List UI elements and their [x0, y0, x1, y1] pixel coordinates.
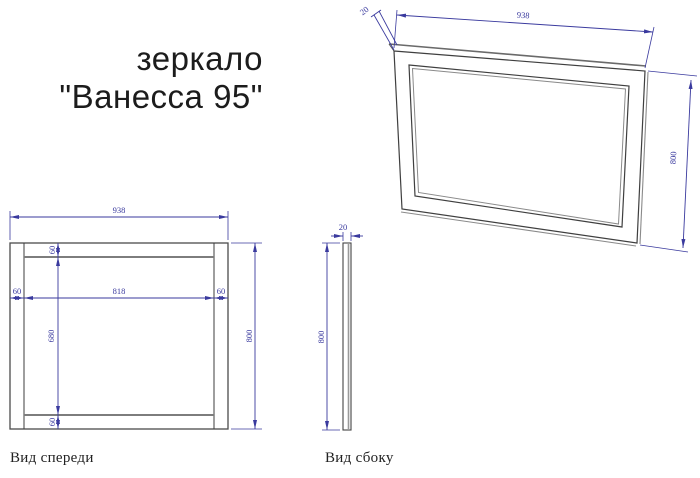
- front-dim-top-margin-value: 60: [47, 246, 57, 255]
- perspective-dim-height: 800: [640, 71, 697, 252]
- side-dim-thickness-value: 20: [339, 222, 348, 232]
- side-dim-height-value: 800: [316, 331, 326, 344]
- perspective-dim-width-value: 938: [517, 10, 530, 21]
- technical-drawing: 938 20 800: [0, 0, 700, 478]
- front-view: 938 60 818 60 60 680 60: [10, 205, 262, 466]
- front-dim-inner-width-value: 818: [113, 286, 126, 296]
- front-dim-horizontal-chain: 60 818 60: [10, 286, 228, 298]
- drawing-sheet: зеркало "Ванесса 95" 938: [0, 0, 700, 478]
- perspective-dim-width: 938: [394, 10, 654, 68]
- front-dim-height: 800: [231, 243, 262, 429]
- extension-line: [645, 27, 654, 68]
- front-dim-vertical-chain: 60 680 60: [46, 243, 58, 429]
- perspective-dim-height-value: 800: [668, 151, 679, 164]
- front-dim-bottom-margin-value: 60: [47, 418, 57, 427]
- front-dim-height-value: 800: [244, 330, 254, 343]
- front-dim-inner-height-value: 680: [46, 330, 56, 343]
- perspective-view: 938 20 800: [358, 4, 697, 252]
- front-dim-width-value: 938: [113, 205, 126, 215]
- side-profile-outline: [343, 243, 351, 430]
- side-dim-thickness: 20: [331, 222, 363, 241]
- side-view: 20 800 Вид сбоку: [316, 222, 394, 466]
- tick-mark: [371, 10, 381, 17]
- front-dim-width: 938: [10, 205, 228, 240]
- front-dim-left-margin-value: 60: [13, 286, 22, 296]
- perspective-bottom-side-edge: [401, 212, 636, 246]
- front-view-label: Вид спереди: [10, 450, 94, 466]
- extension-line: [640, 245, 688, 252]
- perspective-dim-thickness: 20: [358, 4, 397, 50]
- side-view-label: Вид сбоку: [325, 450, 394, 466]
- extension-line: [648, 71, 697, 76]
- dimension-line: [683, 80, 691, 248]
- front-dim-right-margin-value: 60: [217, 286, 226, 296]
- front-frame-outline: [10, 243, 228, 429]
- side-dim-height: 800: [316, 243, 340, 430]
- perspective-mirror-opening: [409, 65, 629, 227]
- perspective-dim-thickness-value: 20: [358, 4, 371, 17]
- perspective-top-back-edge: [389, 44, 646, 66]
- perspective-frame-outline: [394, 51, 645, 243]
